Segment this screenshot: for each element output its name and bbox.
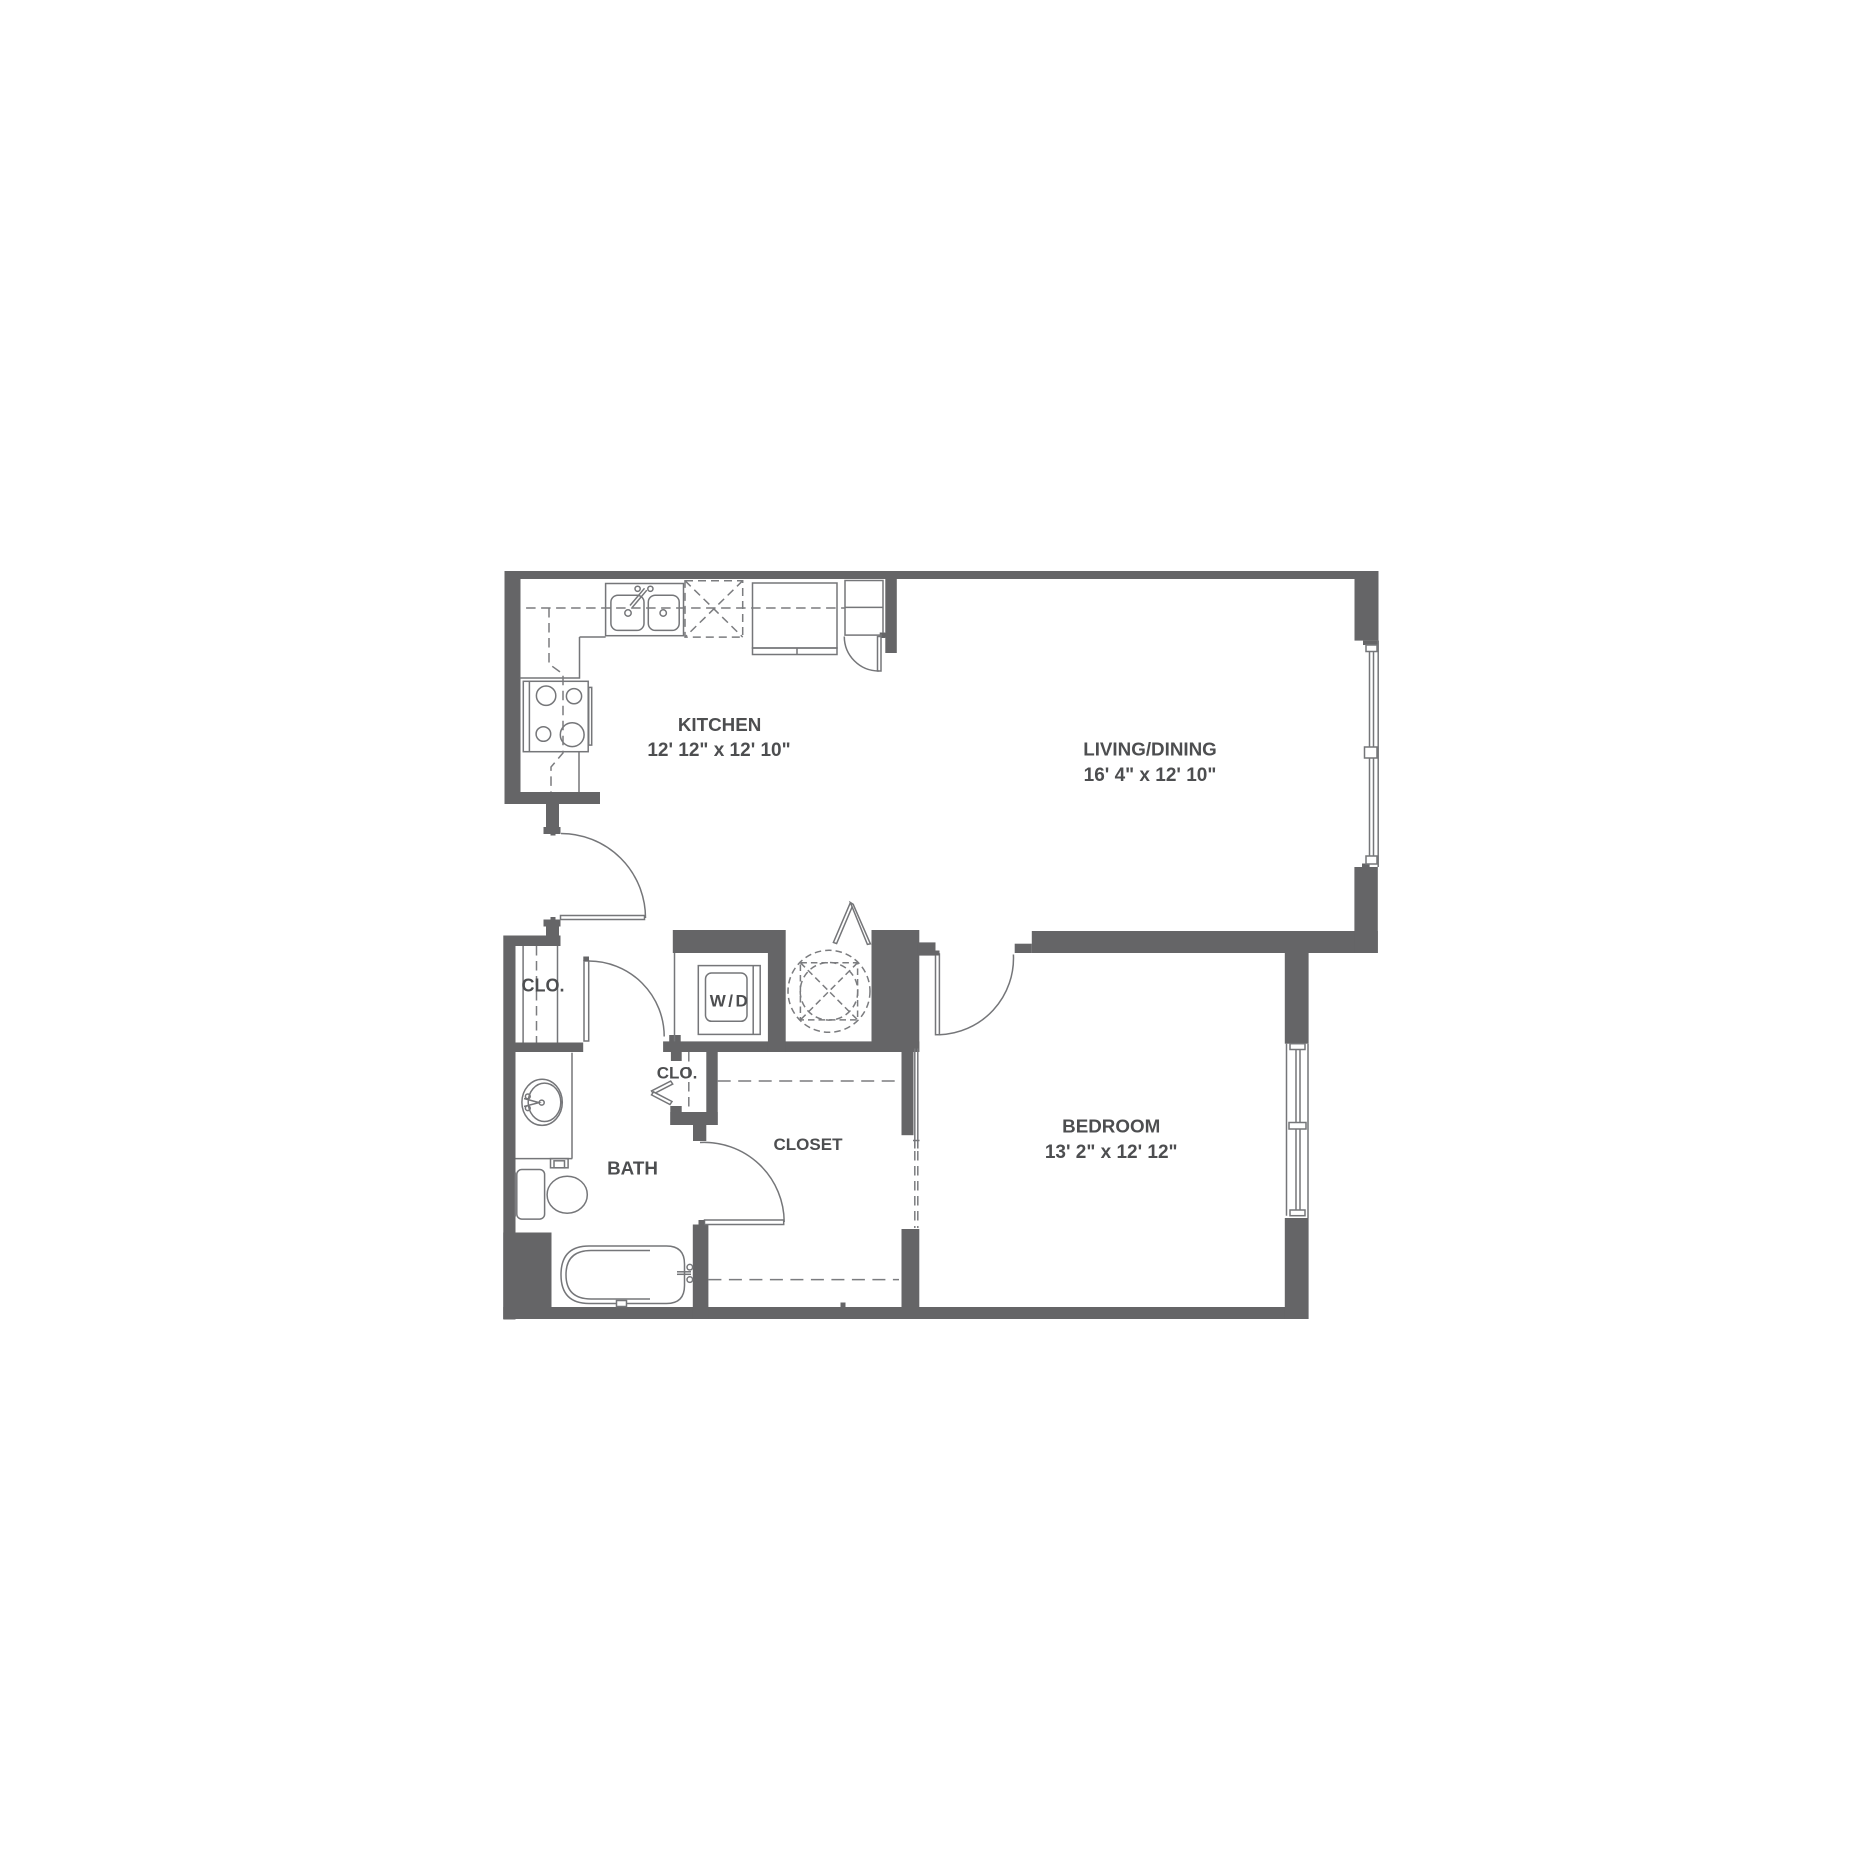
svg-text:16' 4" x 12' 10": 16' 4" x 12' 10" — [1084, 765, 1217, 786]
svg-text:BEDROOM: BEDROOM — [1062, 1116, 1160, 1137]
svg-text:LIVING/DINING: LIVING/DINING — [1083, 739, 1217, 760]
svg-text:CLO.: CLO. — [657, 1064, 698, 1083]
svg-text:CLOSET: CLOSET — [774, 1135, 844, 1154]
svg-text:12' 12" x 12' 10": 12' 12" x 12' 10" — [647, 740, 790, 761]
svg-text:KITCHEN: KITCHEN — [678, 714, 761, 735]
svg-text:CLO.: CLO. — [522, 975, 565, 995]
svg-text:W/D: W/D — [710, 992, 751, 1011]
svg-text:BATH: BATH — [607, 1158, 658, 1179]
svg-text:13' 2" x 12' 12": 13' 2" x 12' 12" — [1045, 1142, 1178, 1163]
